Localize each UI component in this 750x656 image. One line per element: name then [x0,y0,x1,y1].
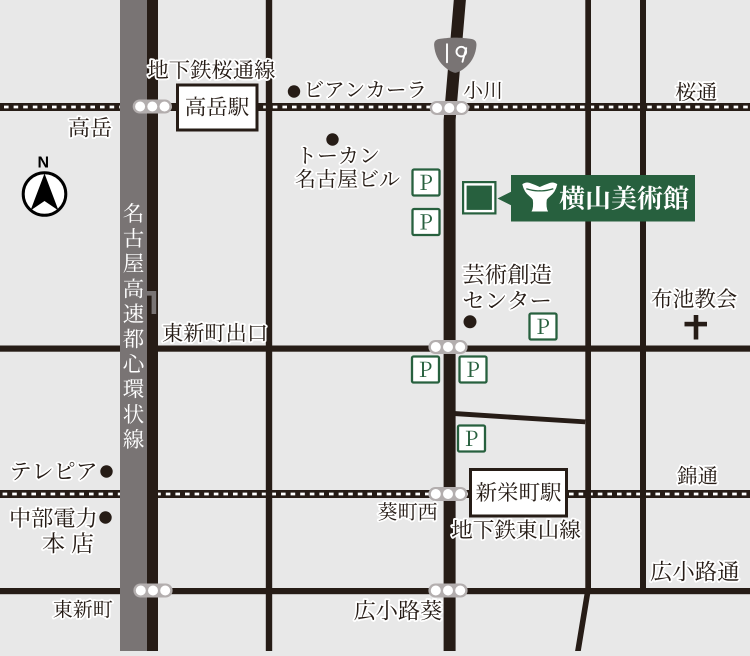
svg-text:高岳: 高岳 [68,112,112,143]
svg-text:地下鉄東山線: 地下鉄東山線 [451,514,581,545]
svg-text:東新町出口: 東新町出口 [162,317,268,347]
svg-text:P: P [419,207,433,237]
svg-text:地下鉄桜通線: 地下鉄桜通線 [148,54,276,85]
svg-text:葵町西: 葵町西 [378,496,438,525]
svg-text:桜通: 桜通 [675,77,717,107]
svg-text:広小路通: 広小路通 [650,555,740,587]
svg-text:横山美術館: 横山美術館 [559,179,689,216]
svg-text:P: P [465,423,479,453]
svg-text:本店: 本店 [42,526,100,559]
svg-text:N: N [38,155,50,172]
svg-text:線: 線 [123,423,145,454]
svg-text:テレピア: テレピア [10,455,98,486]
svg-text:広小路葵: 広小路葵 [354,594,443,626]
svg-text:新栄町駅: 新栄町駅 [475,476,561,507]
svg-text:小川: 小川 [463,75,503,104]
svg-text:P: P [466,354,480,384]
svg-text:P: P [419,167,433,197]
svg-text:P: P [419,354,433,384]
svg-text:名古屋ビル: 名古屋ビル [295,164,400,194]
svg-text:P: P [536,311,550,341]
svg-text:センター: センター [462,284,552,316]
svg-text:高岳駅: 高岳駅 [185,91,250,122]
svg-text:錦通: 錦通 [677,459,718,489]
svg-text:布池教会: 布池教会 [651,283,737,314]
svg-text:東新町: 東新町 [53,594,113,623]
svg-text:ビアンカーラ: ビアンカーラ [304,73,428,103]
